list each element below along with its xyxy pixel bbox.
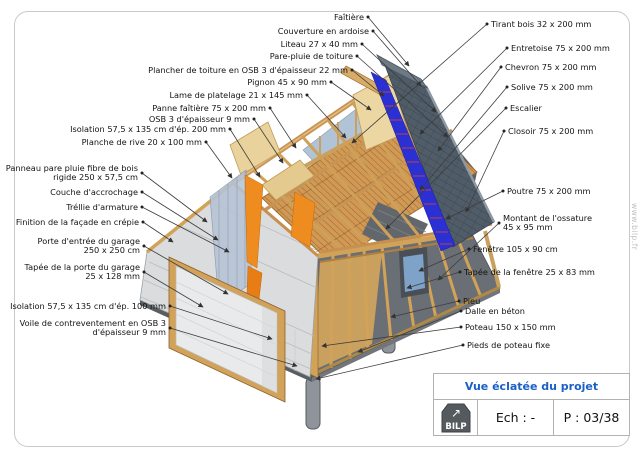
label-porte-garage: Porte d'entrée du garage 250 x 250 cm: [38, 237, 140, 256]
label-isolation-100: Isolation 57,5 x 135 cm d'ép. 100 mm: [10, 302, 166, 312]
label-pieu: Pieu: [463, 297, 480, 307]
drawing-title: Vue éclatée du projet: [465, 380, 598, 393]
label-tapee-fenetre: Tapée de la fenêtre 25 x 83 mm: [464, 268, 595, 278]
label-trellie-armature: Tréllie d'armature: [66, 203, 138, 213]
label-montant-ossature: Montant de l'ossature 45 x 95 mm: [503, 214, 592, 233]
label-poutre: Poutre 75 x 200 mm: [507, 187, 591, 197]
label-pare-pluie-toiture: Pare-pluie de toiture: [270, 52, 353, 62]
bilp-logo-icon: ↗ BILP: [439, 402, 473, 434]
label-escalier: Escalier: [510, 104, 542, 114]
label-faitiere: Faîtière: [334, 13, 364, 23]
label-couche-accrochage: Couche d'accrochage: [50, 188, 138, 198]
label-closoir: Closoir 75 x 200 mm: [508, 127, 593, 137]
label-pieds-poteau: Pieds de poteau fixe: [467, 341, 550, 351]
drawing-sheet: FaîtièreCouverture en ardoiseLiteau 27 x…: [0, 0, 640, 452]
watermark-url: www.bilp.fr: [630, 203, 639, 250]
label-voile-osb: Voile de contreventement en OSB 3 d'épai…: [20, 319, 166, 338]
label-pignon: Pignon 45 x 90 mm: [247, 78, 327, 88]
label-dalle-beton: Dalle en béton: [465, 307, 525, 317]
title-row: Vue éclatée du projet: [434, 374, 629, 400]
label-osb-9mm: OSB 3 d'épaisseur 9 mm: [149, 115, 250, 125]
label-tapee-porte-garage: Tapée de la porte du garage 25 x 128 mm: [24, 263, 140, 282]
logo-arrow-icon: ↗: [450, 406, 460, 420]
label-lame-platelage: Lame de platelage 21 x 145 mm: [169, 91, 303, 101]
label-poteau: Poteau 150 x 150 mm: [465, 323, 556, 333]
svg-text:BILP: BILP: [445, 422, 466, 432]
label-entretoise: Entretoise 75 x 200 mm: [511, 44, 610, 54]
title-block: Vue éclatée du projet ↗ BILP Ech : - P :…: [433, 373, 630, 436]
scale-value: Ech : -: [478, 400, 554, 435]
label-liteau: Liteau 27 x 40 mm: [281, 40, 358, 50]
label-panneau-pare-pluie: Panneau pare pluie fibre de bois rigide …: [6, 164, 138, 183]
label-solive: Solive 75 x 200 mm: [511, 83, 593, 93]
page-number: P : 03/38: [554, 400, 629, 435]
label-couverture-ardoise: Couverture en ardoise: [278, 27, 369, 37]
window: [399, 247, 429, 298]
label-isolation-200: Isolation 57,5 x 135 cm d'ép. 200 mm: [70, 125, 226, 135]
label-plancher-toiture-osb: Plancher de toiture en OSB 3 d'épaisseur…: [148, 66, 348, 76]
label-planche-rive: Planche de rive 20 x 100 mm: [82, 138, 202, 148]
label-chevron: Chevron 75 x 200 mm: [505, 63, 596, 73]
label-tirant-bois: Tirant bois 32 x 200 mm: [491, 20, 591, 30]
label-fenetre: Fenêtre 105 x 90 cm: [473, 245, 558, 255]
label-finition-facade: Finition de la façade en crépie: [16, 218, 139, 228]
bilp-logo: ↗ BILP: [434, 400, 478, 435]
label-panne-faitiere: Panne faîtière 75 x 200 mm: [152, 104, 266, 114]
